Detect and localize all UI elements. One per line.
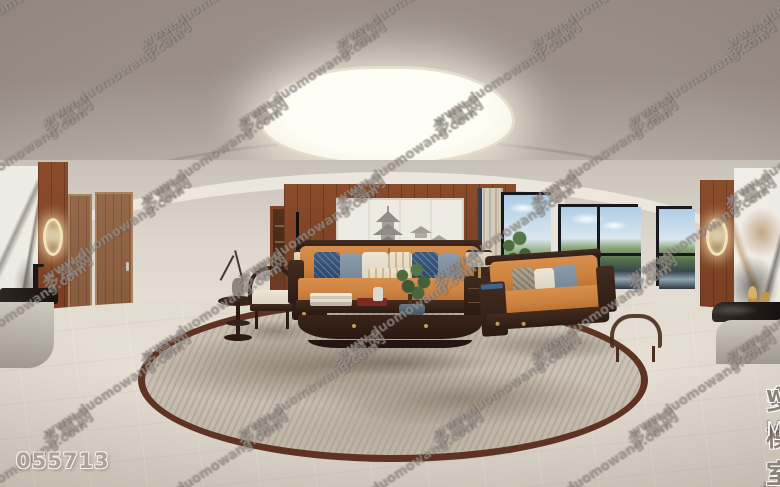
window-right-small — [656, 206, 692, 286]
table-shelf — [226, 320, 250, 326]
furniture-shadow — [296, 350, 496, 376]
armchair-seat-frame — [250, 304, 294, 311]
window-mullion — [659, 253, 695, 256]
sculpture — [373, 287, 383, 301]
brand-model-id: 模型ID: M0054974 — [766, 388, 780, 441]
cloud — [508, 203, 538, 213]
image-id: 055713 — [16, 449, 110, 473]
table-stem — [236, 302, 240, 334]
chair-leg — [652, 346, 655, 362]
throw-pillow — [340, 254, 362, 280]
sideboard-body — [716, 320, 780, 364]
bar-counter-body — [0, 302, 54, 368]
ceiling-light-panel — [259, 66, 515, 166]
coffee-table-shelf — [308, 340, 472, 348]
drawer-knob — [352, 324, 356, 328]
table-base — [224, 334, 252, 341]
sideboard-top — [712, 302, 780, 322]
window-view — [659, 209, 695, 289]
wall-sconce-left — [43, 218, 63, 256]
chair-leg — [286, 311, 289, 329]
chair-leg — [255, 311, 258, 329]
wall-sconce-right — [706, 218, 728, 256]
chair-leg — [616, 346, 619, 362]
door-handle — [126, 262, 129, 271]
throw-pillow — [314, 252, 340, 280]
faucet-spout — [33, 264, 44, 267]
drawer-knob — [424, 324, 428, 328]
cloud — [601, 221, 627, 230]
throw-pillow — [438, 254, 460, 280]
second-sofa — [477, 243, 624, 357]
bonsai-plant — [388, 260, 436, 304]
foreground-chair-back — [610, 314, 662, 348]
panorama-render: 多模网www.duomowang.com多模网www.duomowang.com… — [0, 0, 780, 487]
coffee-table-apron — [298, 315, 482, 339]
